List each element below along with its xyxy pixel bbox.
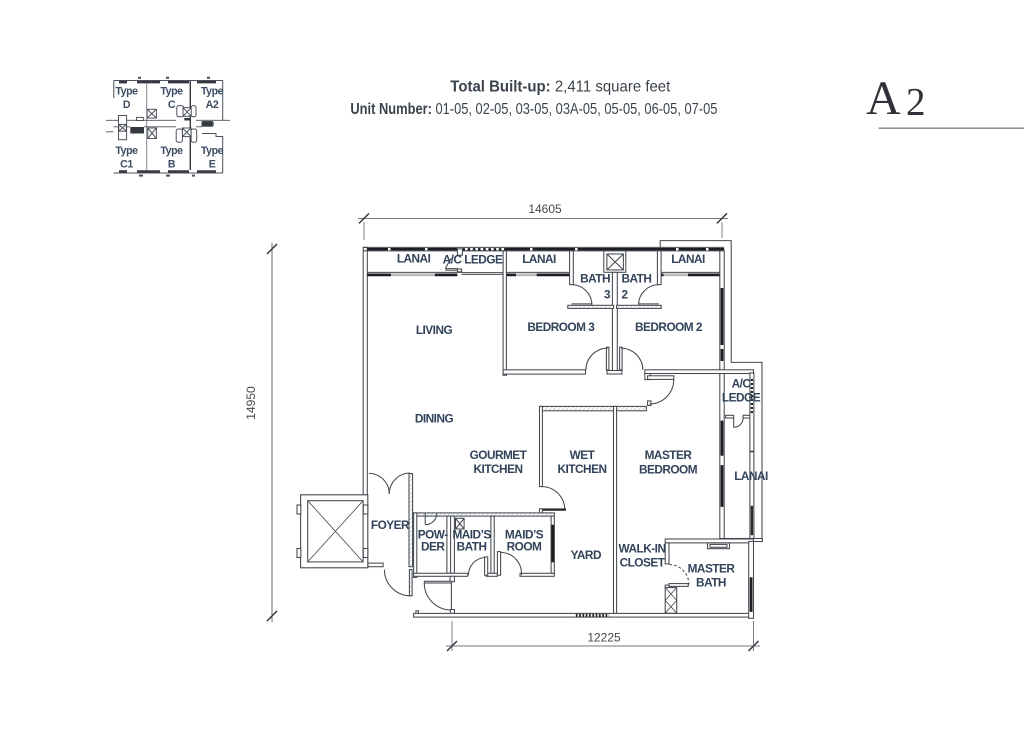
svg-text:LANAI: LANAI: [671, 252, 705, 266]
svg-text:CLOSET: CLOSET: [620, 556, 666, 570]
svg-text:C1: C1: [120, 159, 133, 171]
svg-text:Type: Type: [115, 145, 138, 157]
svg-text:Unit Number: 01-05, 02-05, 03-: Unit Number: 01-05, 02-05, 03-05, 03A-05…: [350, 101, 717, 118]
svg-text:BATH: BATH: [457, 540, 487, 554]
svg-text:A2: A2: [206, 99, 219, 111]
svg-text:BATH: BATH: [622, 272, 652, 286]
svg-text:Type: Type: [160, 86, 183, 98]
svg-text:BEDROOM 3: BEDROOM 3: [527, 320, 595, 334]
svg-text:Type: Type: [201, 145, 224, 157]
svg-text:BATH: BATH: [580, 272, 610, 286]
svg-text:DER: DER: [421, 540, 445, 554]
svg-text:A/C LEDGE: A/C LEDGE: [443, 253, 503, 267]
svg-text:LIVING: LIVING: [416, 323, 453, 337]
svg-text:D: D: [123, 99, 131, 111]
svg-text:BATH: BATH: [696, 575, 726, 589]
svg-text:KITCHEN: KITCHEN: [474, 462, 523, 476]
svg-text:FOYER: FOYER: [371, 518, 410, 532]
svg-text:Type: Type: [160, 145, 183, 157]
svg-text:GOURMET: GOURMET: [470, 448, 528, 462]
svg-text:A: A: [866, 72, 901, 125]
svg-text:WET: WET: [570, 448, 596, 462]
svg-text:14605: 14605: [528, 202, 562, 216]
svg-text:C: C: [168, 99, 176, 111]
svg-text:Type: Type: [115, 86, 138, 98]
svg-text:B: B: [168, 159, 176, 171]
svg-text:BEDROOM: BEDROOM: [639, 462, 698, 476]
svg-text:Total Built-up: 2,411 square f: Total Built-up: 2,411 square feet: [450, 79, 671, 96]
svg-text:MASTER: MASTER: [688, 561, 736, 575]
svg-text:ROOM: ROOM: [507, 540, 542, 554]
svg-text:YARD: YARD: [571, 548, 602, 562]
svg-text:LANAI: LANAI: [734, 469, 768, 483]
svg-text:2: 2: [622, 288, 629, 302]
svg-text:Type: Type: [201, 86, 224, 98]
svg-text:KITCHEN: KITCHEN: [558, 462, 607, 476]
svg-text:WALK-IN: WALK-IN: [619, 542, 666, 556]
svg-text:E: E: [209, 159, 216, 171]
svg-text:BEDROOM 2: BEDROOM 2: [635, 320, 703, 334]
svg-text:A/C: A/C: [732, 377, 752, 391]
svg-text:MASTER: MASTER: [645, 448, 693, 462]
svg-text:DINING: DINING: [415, 411, 454, 425]
svg-text:14950: 14950: [244, 386, 258, 420]
svg-text:12225: 12225: [587, 631, 621, 645]
svg-text:LANAI: LANAI: [397, 252, 431, 266]
svg-text:2: 2: [906, 81, 926, 124]
svg-text:3: 3: [604, 288, 611, 302]
svg-text:LANAI: LANAI: [522, 252, 556, 266]
svg-text:LEDGE: LEDGE: [722, 391, 761, 405]
